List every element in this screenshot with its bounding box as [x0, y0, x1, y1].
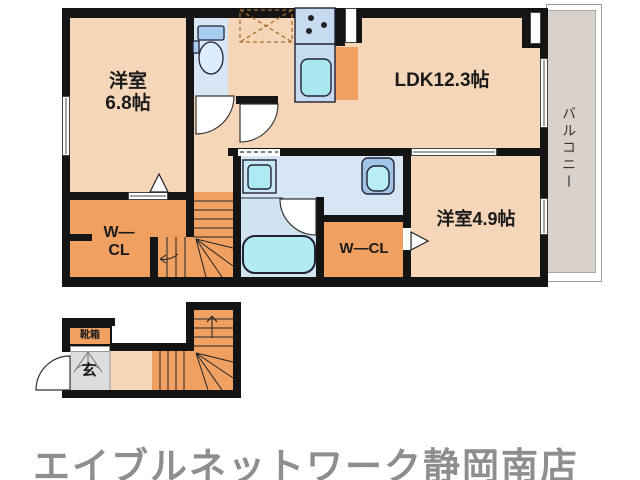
wall-lower-bottom: [62, 390, 241, 398]
store-name: エイブルネットワーク静岡南店: [33, 436, 633, 480]
label-ldk: LDK12.3帖: [377, 70, 507, 92]
label-genkan: 玄: [78, 362, 100, 379]
door-bedroom1-slider: [128, 192, 168, 200]
floor-plan-page: 靴箱: [0, 0, 640, 480]
door-washroom-opening: [238, 149, 280, 156]
wall-spine: [186, 18, 194, 237]
window-ldk-balcony: [540, 58, 548, 128]
label-wcl-left-line2: CL: [92, 242, 146, 260]
kitchen-side-counter: [335, 47, 358, 100]
window-corner-slot: [530, 12, 541, 44]
wall-column-left: [186, 302, 194, 351]
wall-ldk-stub: [236, 96, 278, 104]
wall-bedroom2-top: [497, 148, 540, 156]
label-bedroom2: 洋室4.9帖: [413, 209, 539, 230]
room-bathroom: [241, 197, 316, 277]
wall-wcl-right-left: [316, 197, 324, 287]
label-bedroom1: 洋室 6.8帖: [88, 71, 168, 115]
label-wcl-left-line1: W—: [92, 224, 146, 242]
room-toilet: [193, 18, 228, 96]
label-wcl-left: W— CL: [92, 224, 146, 261]
stairs-upper-column: [194, 192, 233, 277]
window-kitchen-slot: [345, 8, 357, 43]
door-bedroom2-slider: [411, 148, 497, 156]
label-balcony: バルコニー: [561, 106, 577, 191]
wall-bottom: [62, 277, 548, 287]
shoe-cabinet-label: 靴箱: [80, 330, 100, 342]
shoe-cabinet-box: 靴箱: [68, 326, 112, 346]
door-wclright-opening: [403, 228, 411, 250]
wall-wcl-right-top: [316, 215, 411, 222]
window-bedroom2: [540, 198, 548, 235]
window-left: [62, 96, 70, 156]
wall-washroom-left: [233, 148, 241, 287]
label-bedroom1-line2: 6.8帖: [88, 93, 168, 115]
wall-stairs-lower-left: [150, 237, 158, 285]
wall-kitchen-stub-b: [357, 8, 362, 43]
wall-wcl-left-stub: [70, 234, 92, 241]
door-entry-opening: [62, 352, 70, 388]
label-wcl-right: W—CL: [329, 240, 399, 257]
wall-top: [62, 8, 548, 18]
stairs-upper-run: [158, 237, 194, 277]
wall-lower-right: [233, 302, 241, 398]
wall-right: [540, 8, 548, 287]
stairs-lower-run: [152, 351, 194, 390]
label-bedroom1-line1: 洋室: [88, 71, 168, 93]
wall-hall-top: [110, 343, 194, 351]
stairs-lower-column: [194, 310, 233, 390]
wall-kitchen-stub-a: [333, 8, 345, 46]
